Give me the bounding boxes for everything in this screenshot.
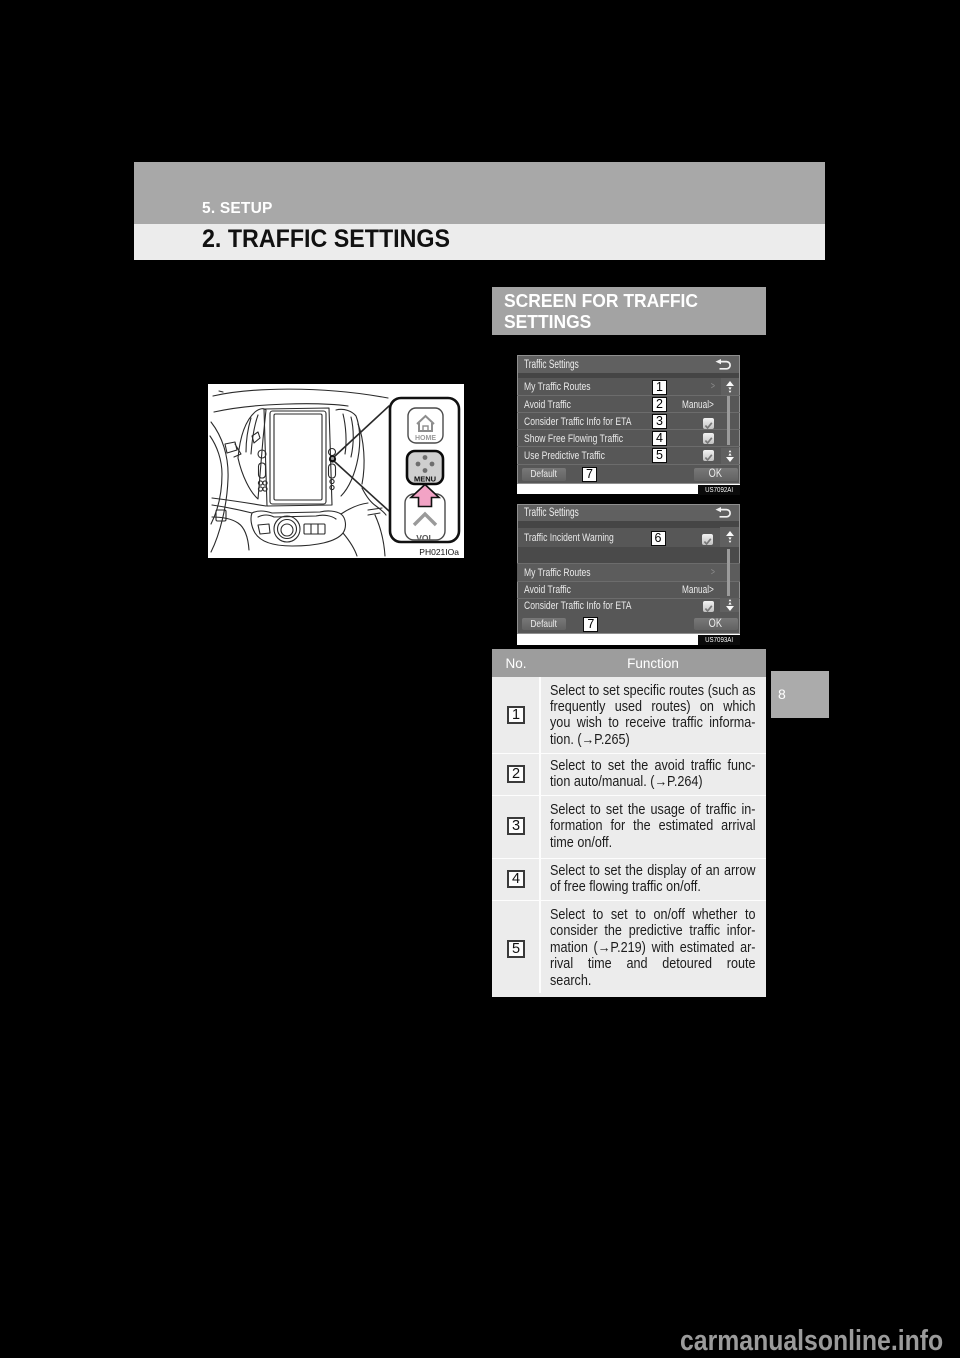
svg-text:HOME: HOME — [415, 435, 436, 442]
svg-text:MENU: MENU — [414, 475, 436, 484]
svg-text:PH021IOa: PH021IOa — [419, 547, 459, 557]
svg-text:VOL: VOL — [416, 533, 433, 543]
